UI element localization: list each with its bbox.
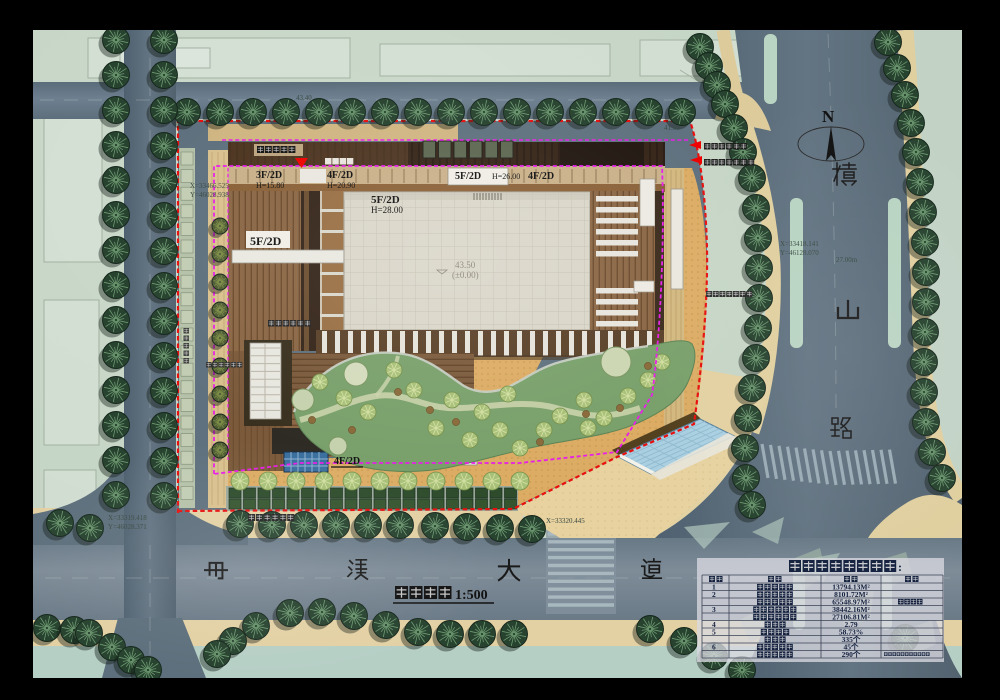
svg-text:3: 3 (712, 605, 716, 614)
svg-text:6: 6 (712, 643, 716, 652)
svg-text:5: 5 (712, 628, 716, 637)
svg-text:X=33320.445: X=33320.445 (546, 517, 585, 525)
svg-text:290个: 290个 (842, 649, 861, 659)
svg-text:2: 2 (712, 590, 716, 599)
